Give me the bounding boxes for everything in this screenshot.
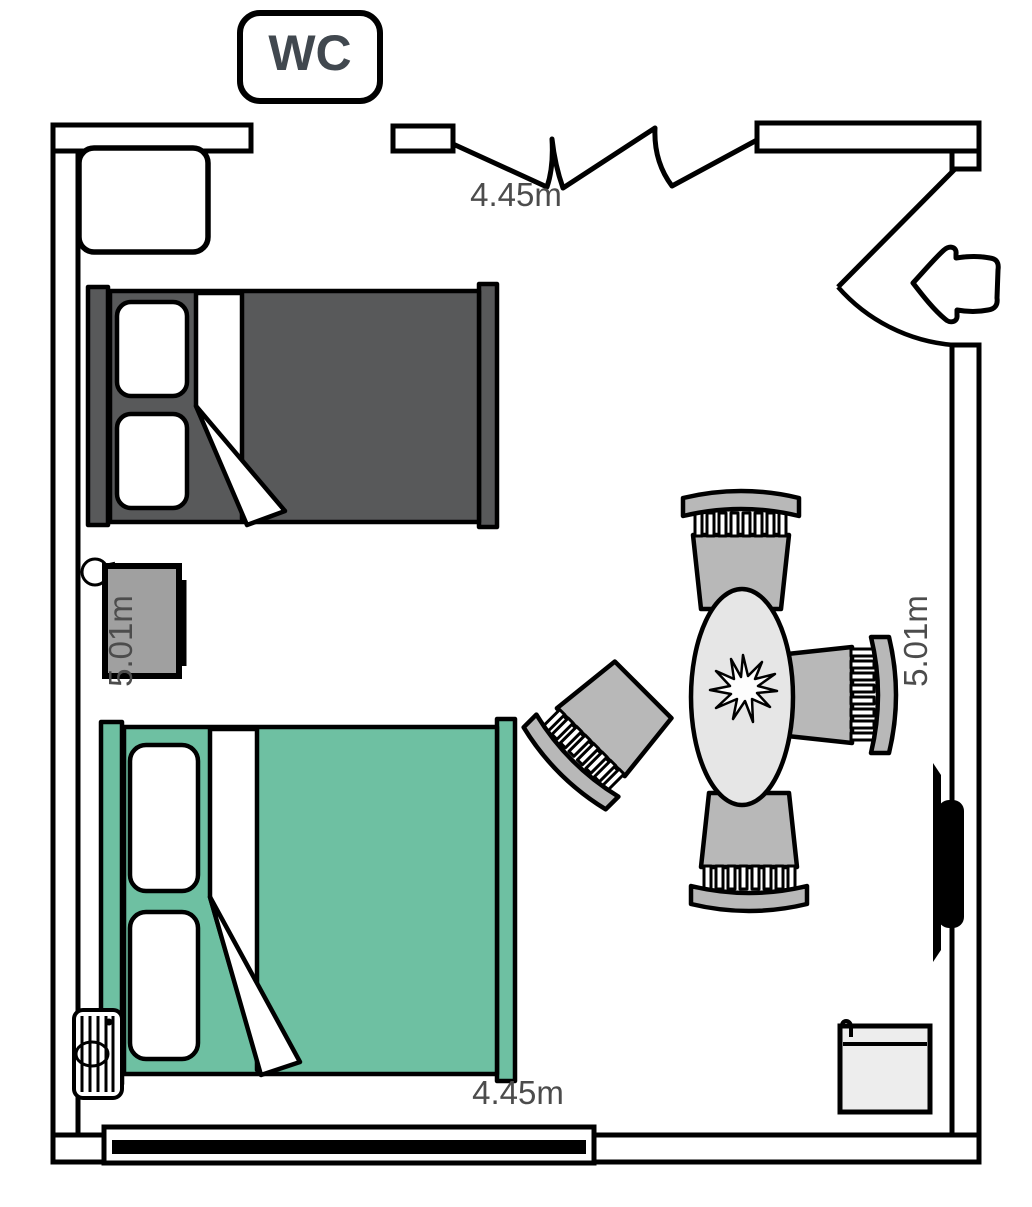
entrance-arrow-icon bbox=[913, 247, 998, 322]
pillow bbox=[130, 912, 198, 1059]
chair-bottom bbox=[691, 793, 807, 911]
wall-right bbox=[952, 345, 979, 1162]
dining-set bbox=[519, 491, 896, 911]
chair-right bbox=[778, 637, 896, 753]
dimension-label-left: 5.01m bbox=[102, 595, 139, 687]
chair-left bbox=[519, 649, 684, 814]
cabinet bbox=[79, 148, 208, 252]
wall-tv-screen bbox=[938, 800, 964, 928]
pillow bbox=[130, 745, 198, 891]
bed-dark-footboard bbox=[479, 284, 497, 527]
floor-plan: WC bbox=[0, 0, 1032, 1207]
dimension-label-bottom: 4.45m bbox=[472, 1074, 564, 1111]
window-glass-bar bbox=[112, 1140, 586, 1154]
pillow bbox=[117, 414, 187, 508]
pillow bbox=[117, 302, 187, 396]
dimension-label-right: 5.01m bbox=[897, 595, 934, 687]
radiator bbox=[74, 1010, 122, 1098]
wc-room-label: WC bbox=[268, 25, 351, 81]
window-bottom bbox=[104, 1127, 594, 1163]
floor-plan-page: WC bbox=[0, 0, 1032, 1207]
dimension-label-top: 4.45m bbox=[470, 176, 562, 213]
door-jamb-right bbox=[952, 151, 979, 169]
bed-teal-footboard bbox=[497, 719, 515, 1081]
door-jamb-top bbox=[393, 126, 453, 151]
bed-dark bbox=[88, 284, 497, 527]
wall-left bbox=[53, 125, 78, 1162]
bed-dark-headboard bbox=[88, 287, 108, 525]
waste-bin bbox=[840, 1021, 930, 1112]
wall-top-right bbox=[757, 123, 979, 151]
bed-teal bbox=[101, 719, 515, 1084]
